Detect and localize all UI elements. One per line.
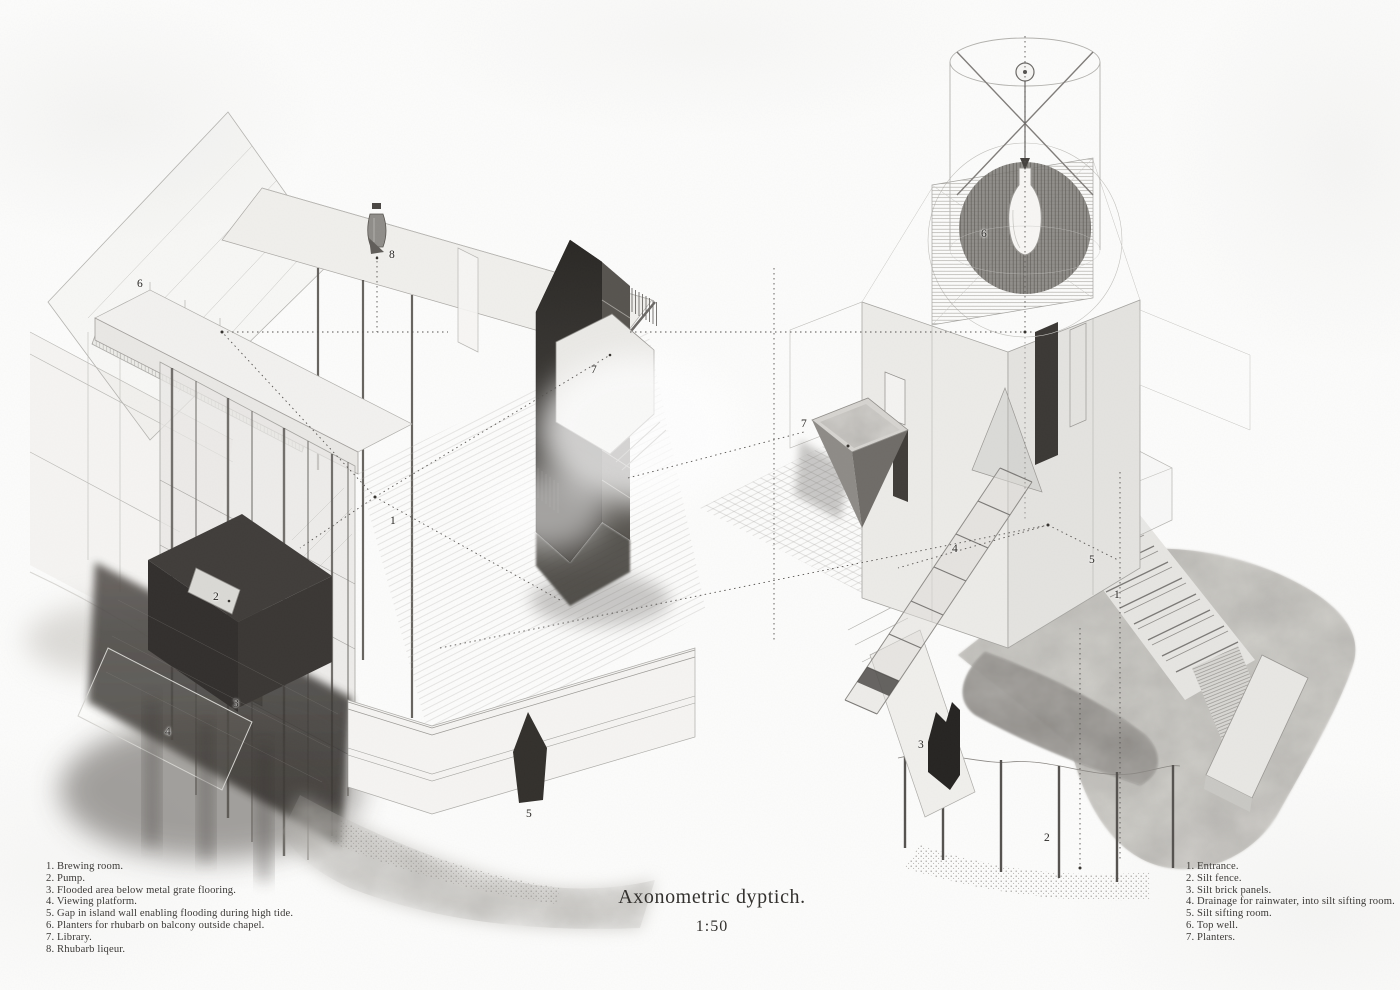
legend-item: 2. Silt fence. <box>1186 873 1395 885</box>
legend-item: 5. Silt sifting room. <box>1186 908 1395 920</box>
legend-item: 1. Entrance. <box>1186 861 1395 873</box>
drawing-sheet: 12345678 1234567 1. Brewing room.2. Pump… <box>0 0 1400 990</box>
callout-label: 1 <box>390 515 396 527</box>
legend-right: 1. Entrance.2. Silt fence.3. Silt brick … <box>1186 861 1395 944</box>
legend-item: 7. Planters. <box>1186 932 1395 944</box>
legend-item: 7. Library. <box>46 932 293 944</box>
legend-item: 1. Brewing room. <box>46 861 293 873</box>
callout-label: 8 <box>389 249 395 261</box>
callout-label: 5 <box>526 808 532 820</box>
legend-item: 4. Drainage for rainwater, into silt sif… <box>1186 896 1395 908</box>
callout-label: 7 <box>591 364 597 376</box>
legend-item: 3. Flooded area below metal grate floori… <box>46 885 293 897</box>
callout-label: 4 <box>952 543 958 555</box>
callout-label: 6 <box>137 278 143 290</box>
paper-grain <box>0 0 1400 990</box>
callout-label: 1 <box>1114 589 1120 601</box>
legend-left: 1. Brewing room.2. Pump.3. Flooded area … <box>46 861 293 955</box>
drawing-title: Axonometric dyptich. <box>562 886 862 909</box>
callout-label: 3 <box>233 698 239 710</box>
legend-item: 3. Silt brick panels. <box>1186 885 1395 897</box>
legend-item: 6. Top well. <box>1186 920 1395 932</box>
callout-label: 6 <box>981 228 987 240</box>
legend-item: 4. Viewing platform. <box>46 896 293 908</box>
callout-label: 4 <box>165 726 171 738</box>
legend-item: 6. Planters for rhubarb on balcony outsi… <box>46 920 293 932</box>
drawing-scale: 1:50 <box>562 918 862 936</box>
title-block: Axonometric dyptich. 1:50 <box>562 886 862 936</box>
callout-label: 2 <box>1044 832 1050 844</box>
legend-item: 8. Rhubarb liqeur. <box>46 944 293 956</box>
callout-label: 5 <box>1089 554 1095 566</box>
callout-label: 7 <box>801 418 807 430</box>
axonometric-diptych-linework <box>0 0 1400 990</box>
callout-label: 3 <box>918 739 924 751</box>
callout-label: 2 <box>213 591 219 603</box>
legend-item: 5. Gap in island wall enabling flooding … <box>46 908 293 920</box>
legend-item: 2. Pump. <box>46 873 293 885</box>
